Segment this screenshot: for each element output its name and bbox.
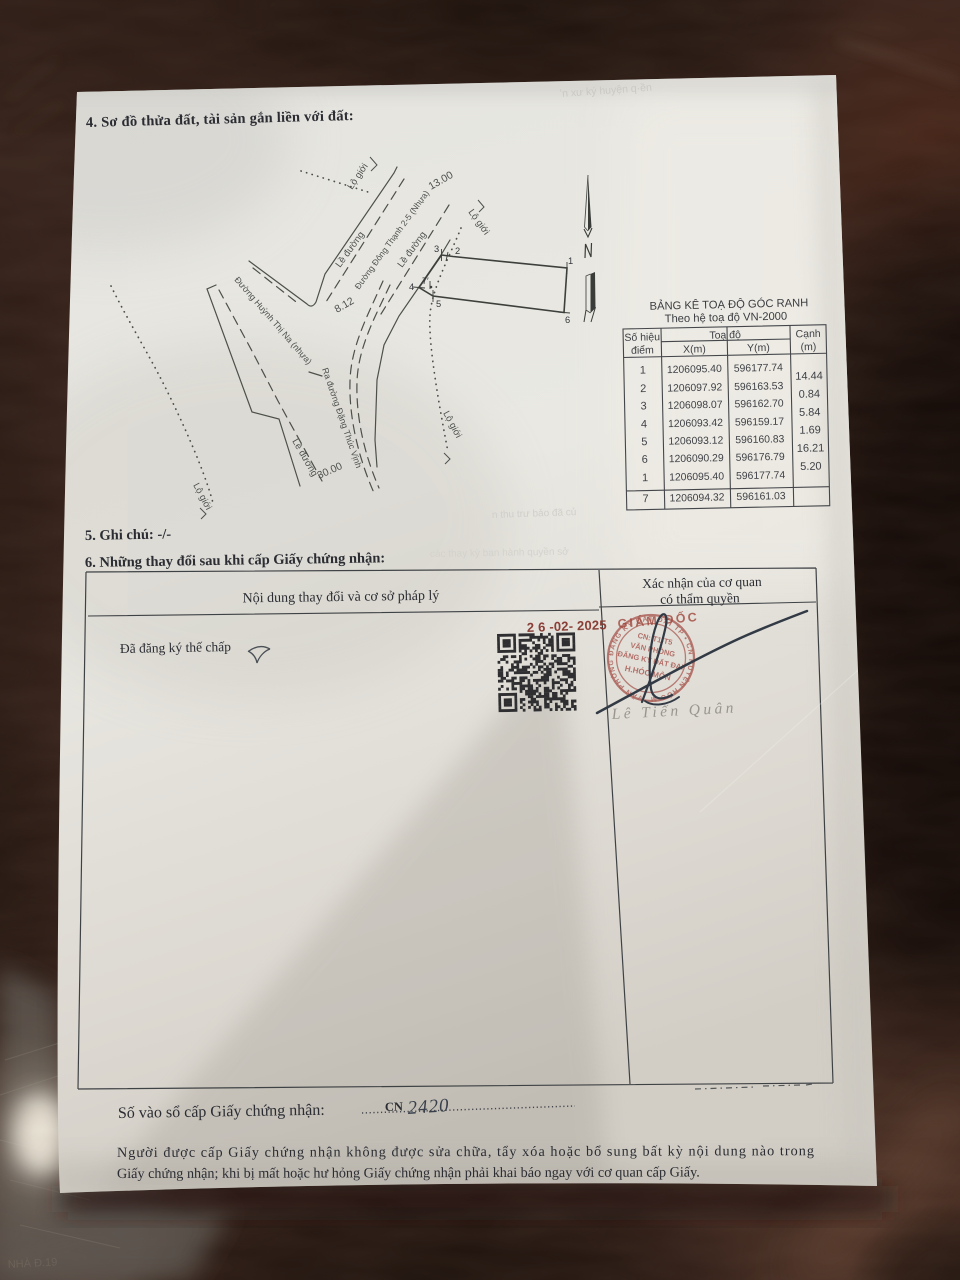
svg-text:596162.70: 596162.70 <box>734 398 784 410</box>
svg-text:7′: 7′ <box>422 276 429 286</box>
svg-text:6: 6 <box>565 315 570 325</box>
svg-text:4: 4 <box>409 282 414 292</box>
svg-text:7: 7 <box>642 493 648 505</box>
svg-text:596159.17: 596159.17 <box>735 417 785 429</box>
svg-text:Xác nhận của cơ quan: Xác nhận của cơ quan <box>642 574 762 591</box>
svg-text:596161.03: 596161.03 <box>736 491 786 503</box>
svg-text:1.69: 1.69 <box>799 424 821 436</box>
svg-text:2 6 -02- 2025: 2 6 -02- 2025 <box>527 617 607 635</box>
svg-text:596177.74: 596177.74 <box>736 470 786 482</box>
svg-text:Số vào sổ cấp Giấy chứng nhận:: Số vào sổ cấp Giấy chứng nhận: <box>118 1102 325 1122</box>
svg-text:1: 1 <box>568 256 573 266</box>
svg-text:điểm: điểm <box>631 344 654 356</box>
svg-text:1206097.92: 1206097.92 <box>667 382 722 394</box>
svg-text:6: 6 <box>642 454 648 466</box>
svg-text:596160.83: 596160.83 <box>735 434 785 446</box>
svg-text:Giấy chứng nhận; khi bị mất ho: Giấy chứng nhận; khi bị mất hoặc hư hỏng… <box>117 1164 700 1182</box>
svg-text:5: 5 <box>436 299 441 309</box>
svg-text:Người được cấp Giấy chứng nhận: Người được cấp Giấy chứng nhận không đượ… <box>117 1143 814 1161</box>
svg-text:Đã đăng ký thế chấp: Đã đăng ký thế chấp <box>120 639 231 656</box>
svg-text:3: 3 <box>434 244 439 254</box>
svg-text:2420: 2420 <box>407 1095 450 1119</box>
svg-text:1206095.40: 1206095.40 <box>669 472 724 484</box>
svg-text:các thay kỳ ban hành quyền sở: các thay kỳ ban hành quyền sở <box>430 546 569 560</box>
svg-text:1206098.07: 1206098.07 <box>668 400 723 412</box>
svg-text:1206094.32: 1206094.32 <box>670 492 725 504</box>
svg-text:1206093.12: 1206093.12 <box>668 436 723 448</box>
svg-text:có thẩm quyền: có thẩm quyền <box>660 590 740 606</box>
svg-text:1206090.29: 1206090.29 <box>669 453 724 465</box>
svg-text:1: 1 <box>642 472 648 484</box>
svg-text:596176.79: 596176.79 <box>736 452 786 464</box>
svg-text:3: 3 <box>640 400 646 412</box>
svg-text:2: 2 <box>455 246 460 256</box>
svg-text:596177.74: 596177.74 <box>734 363 784 375</box>
svg-text:Y(m): Y(m) <box>747 342 770 354</box>
svg-text:1206093.42: 1206093.42 <box>668 418 723 430</box>
svg-text:5.20: 5.20 <box>800 461 822 473</box>
svg-text:Số hiệu: Số hiệu <box>624 331 660 344</box>
svg-text:4: 4 <box>641 419 647 431</box>
svg-text:X(m): X(m) <box>683 343 706 355</box>
svg-text:1: 1 <box>640 365 646 377</box>
svg-text:Cạnh: Cạnh <box>795 328 821 341</box>
svg-text:16.21: 16.21 <box>797 442 825 455</box>
svg-text:2: 2 <box>640 383 646 395</box>
svg-text:0.84: 0.84 <box>799 388 821 400</box>
svg-text:CN: CN <box>385 1100 403 1114</box>
svg-text:Nội dung thay đổi và cơ sở phá: Nội dung thay đổi và cơ sở pháp lý <box>242 589 439 607</box>
svg-text:5: 5 <box>641 436 647 448</box>
svg-text:5.84: 5.84 <box>799 406 821 418</box>
svg-text:14.44: 14.44 <box>795 370 823 383</box>
svg-text:5. Ghi chú: -/-: 5. Ghi chú: -/- <box>85 526 172 544</box>
svg-text:Toạ độ: Toạ độ <box>709 329 741 342</box>
svg-text:596163.53: 596163.53 <box>734 381 784 393</box>
svg-text:(m): (m) <box>800 341 816 353</box>
svg-text:1206095.40: 1206095.40 <box>667 364 722 376</box>
